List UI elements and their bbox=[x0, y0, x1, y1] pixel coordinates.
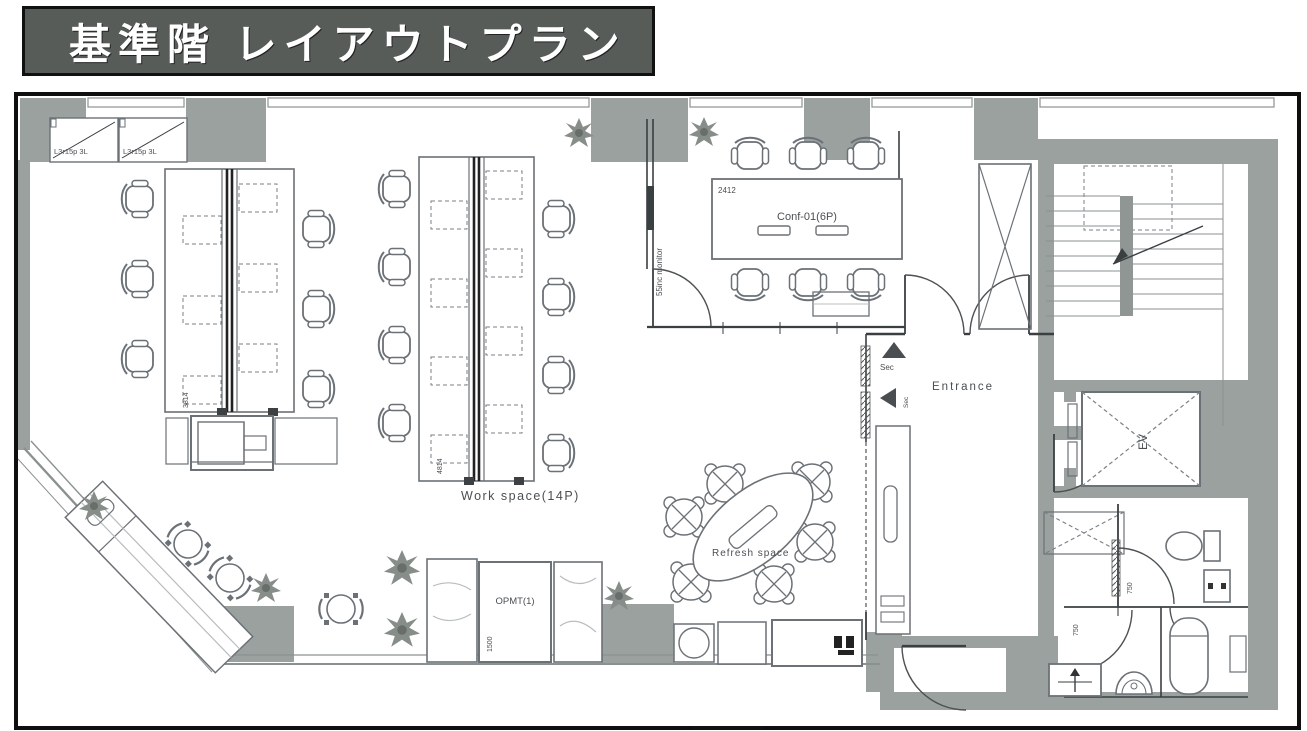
entrance-label: Entrance bbox=[932, 381, 994, 393]
printer-unit bbox=[166, 416, 337, 470]
floor-plan-drawing: L3r15p 3L L3r15p 3L 3814 bbox=[18, 96, 1297, 726]
refresh-label: Refresh space bbox=[712, 548, 789, 559]
toilet-fixture-upper bbox=[1166, 531, 1220, 561]
storage-cabinets: L3r15p 3L L3r15p 3L bbox=[50, 118, 187, 162]
desk-dim-left: 3814 bbox=[183, 392, 190, 408]
refresh-space: Refresh space bbox=[664, 292, 869, 604]
x-brace-frame bbox=[979, 164, 1031, 329]
title-banner: 基準階 レイアウトプラン bbox=[22, 6, 655, 76]
lounge-area bbox=[65, 481, 362, 672]
toilet-dim: 750 bbox=[1127, 582, 1134, 594]
toilets: 750 750 bbox=[1049, 504, 1248, 697]
toilet-dim: 750 bbox=[1073, 624, 1080, 636]
desk-dim-center: 4814 bbox=[437, 458, 444, 474]
conference-table: 2412 Conf-01(6P) bbox=[712, 179, 902, 259]
elevator: EV bbox=[1068, 392, 1200, 486]
toilet-sink bbox=[1049, 664, 1101, 696]
monitor-label: 55inc monitor bbox=[655, 248, 664, 296]
wall-monitor bbox=[647, 186, 654, 230]
page-title: 基準階 レイアウトプラン bbox=[25, 11, 627, 72]
security-label: Sec bbox=[880, 363, 894, 372]
kitchen-counter bbox=[772, 620, 862, 666]
cabinet-label: L3r15p 3L bbox=[54, 147, 88, 156]
conference-dim: 2412 bbox=[718, 186, 736, 195]
kitchen-cabinet bbox=[718, 622, 766, 664]
scan-artifact bbox=[693, 726, 763, 730]
elevator-label: EV bbox=[1136, 434, 1150, 450]
urinal bbox=[1116, 672, 1152, 694]
floor-plan-page: 基準階 レイアウトプラン bbox=[0, 0, 1307, 731]
workstation-cluster-left: 3814 bbox=[122, 169, 337, 470]
entrance-partition bbox=[861, 334, 870, 640]
toilet-fixture-lower bbox=[1170, 607, 1246, 694]
cabinet-label: L3r15p 3L bbox=[123, 147, 157, 156]
kitchen-sink-unit bbox=[674, 624, 714, 662]
pantry-dim: 1500 bbox=[487, 636, 494, 652]
pantry-label: OPMT(1) bbox=[495, 596, 534, 607]
security-label: Sec bbox=[903, 396, 910, 408]
conference-label: Conf-01(6P) bbox=[777, 211, 837, 223]
entrance-cabinet bbox=[876, 426, 910, 634]
toilet-cabinet bbox=[1204, 570, 1230, 602]
security-sensor-icon bbox=[882, 342, 906, 358]
workspace-label: Work space(14P) bbox=[461, 489, 580, 503]
floor-plan-frame: L3r15p 3L L3r15p 3L 3814 bbox=[14, 92, 1301, 730]
security-sensor-icon bbox=[880, 388, 896, 408]
workstation-cluster-center: 4814 Work space(14P) bbox=[379, 157, 580, 503]
